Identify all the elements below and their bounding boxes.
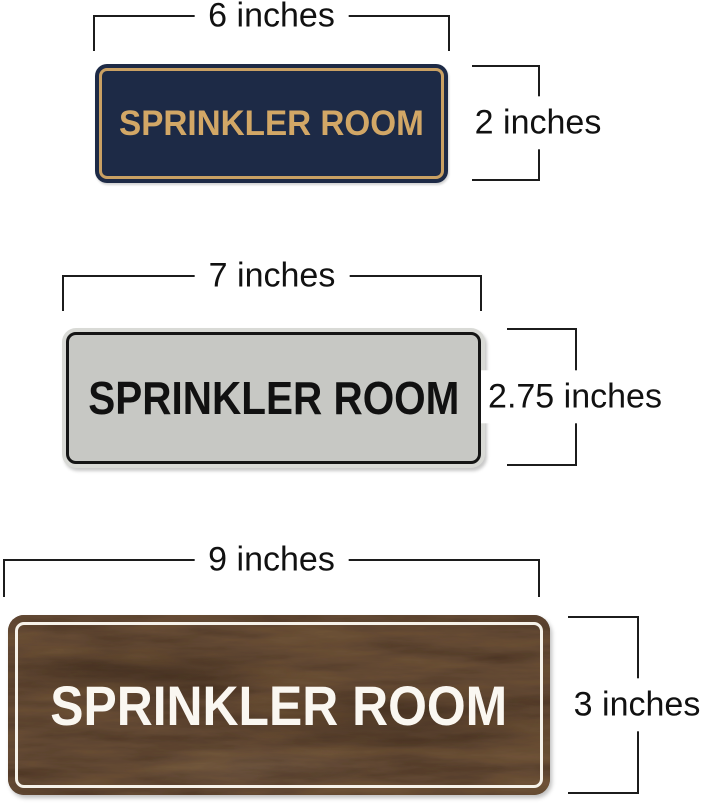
- height-dimension-label: 2.75 inches: [478, 370, 672, 423]
- dimension-hook-right: [448, 15, 450, 51]
- height-dimension-2in: 2 inches: [472, 65, 540, 181]
- height-dimension-label: 3 inches: [564, 678, 711, 731]
- dimension-tick-bottom: [472, 179, 540, 181]
- dimension-tick-top: [472, 65, 540, 67]
- height-dimension-2-75in: 2.75 inches: [507, 328, 577, 466]
- dimension-tick-top: [507, 328, 577, 330]
- dimension-hook-left: [3, 559, 5, 597]
- sign-walnut-white: SPRINKLER ROOM: [8, 615, 550, 795]
- dimension-tick-bottom: [568, 792, 639, 794]
- width-dimension-label: 7 inches: [195, 255, 350, 296]
- width-dimension-label: 9 inches: [194, 539, 349, 580]
- dimension-tick-bottom: [507, 464, 577, 466]
- dimension-hook-right: [480, 275, 482, 311]
- height-dimension-3in: 3 inches: [568, 616, 639, 794]
- dimension-hook-right: [538, 559, 540, 597]
- sign-size-diagram: 6 inches SPRINKLER ROOM 2 inches 7 inche…: [0, 0, 722, 805]
- height-dimension-label: 2 inches: [465, 96, 612, 149]
- dimension-hook-left: [62, 275, 64, 311]
- sign-navy-gold: SPRINKLER ROOM: [95, 64, 448, 183]
- sign-text: SPRINKLER ROOM: [119, 104, 424, 144]
- sign-text: SPRINKLER ROOM: [51, 673, 508, 738]
- dimension-tick-top: [568, 616, 639, 618]
- width-dimension-label: 6 inches: [194, 0, 349, 37]
- dimension-hook-left: [93, 15, 95, 51]
- sign-text: SPRINKLER ROOM: [88, 371, 459, 425]
- sign-silver-black: SPRINKLER ROOM: [62, 328, 485, 468]
